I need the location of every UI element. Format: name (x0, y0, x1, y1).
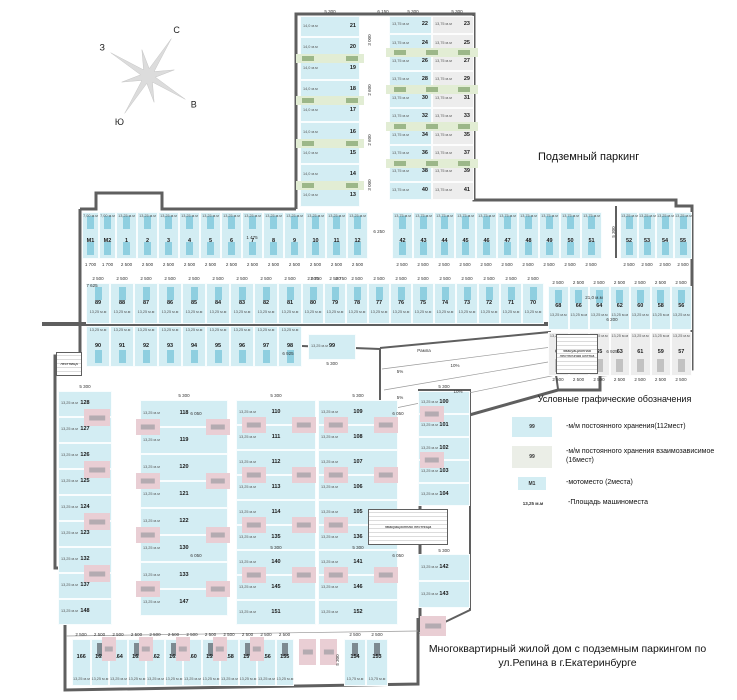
dimension-label: 2 600 (368, 84, 373, 95)
legend-item-storage: 99 -м/м постоянного хранения(112мест) (512, 417, 717, 437)
dimension-label: 2 500 (284, 277, 295, 282)
dimension-label: 2 500 (279, 633, 290, 638)
dimension-label: 2 500 (310, 263, 321, 268)
dimension-label: 5% (397, 396, 404, 401)
dimension-label: Рампа (417, 349, 430, 354)
dimension-label: 6 200 (606, 318, 617, 323)
legend-label: -м/м постоянного хранения взаимозависимо… (566, 448, 717, 466)
legend-item-moto: М1 -мотоместо (2места) (512, 477, 717, 490)
dimension-label: 5 300 (451, 10, 462, 15)
dimension-label: 3 000 (368, 34, 373, 45)
dimension-label: 2 500 (439, 277, 450, 282)
dimension-label: 2 500 (236, 277, 247, 282)
dimension-label: 2 500 (459, 263, 470, 268)
dimension-label: 2 500 (593, 281, 604, 286)
legend-label: -Площадь машиноместа (568, 499, 648, 508)
dimension-label: 2 500 (675, 378, 686, 383)
dimension-label: 2 500 (121, 263, 132, 268)
legend-swatch-storage: 99 (512, 417, 552, 437)
dimension-label: 2 500 (655, 281, 666, 286)
dimension-label: 6 050 (190, 412, 201, 417)
stair-evacuation-lower: эвакуационная лестница (368, 509, 448, 545)
stair-left: лестница (56, 352, 82, 376)
dimension-label: 5 300 (438, 385, 449, 390)
dimension-label: 2 500 (677, 263, 688, 268)
dimension-label: 2 500 (186, 633, 197, 638)
dimension-label: 2 500 (505, 277, 516, 282)
dimension-label: 2 500 (188, 277, 199, 282)
dimension-label: 6 250 (373, 230, 384, 235)
dimension-label: 2 500 (593, 378, 604, 383)
dimension-label: 2 500 (349, 633, 360, 638)
dimension-label: 2 500 (634, 378, 645, 383)
legend-label: -м/м постоянного хранения(112мест) (566, 423, 686, 432)
dimension-label: 2 500 (247, 263, 258, 268)
legend-label: -мотоместо (2места) (566, 479, 633, 488)
legend-item-dependent: 99 -м/м постоянного хранения взаимозавис… (512, 446, 717, 468)
dimension-label: 2 500 (75, 633, 86, 638)
dimension-label: 5% (397, 370, 404, 375)
dimension-label: 5 300 (178, 394, 189, 399)
stair-label: эвакуационная лестница (385, 525, 431, 530)
dimension-label: 5 300 (407, 10, 418, 15)
dimension-label: 2 500 (417, 263, 428, 268)
dimension-label: 2 500 (131, 633, 142, 638)
dimension-label: 2 500 (527, 277, 538, 282)
dimension-label: 5 300 (352, 546, 363, 551)
legend-swatch-moto: М1 (518, 477, 546, 490)
dimension-label: 2 500 (641, 263, 652, 268)
dimension-label: 2 500 (184, 263, 195, 268)
dimension-label: 2 500 (522, 263, 533, 268)
legend-item-area: 13,25 м.м -Площадь машиноместа (512, 499, 717, 508)
legend-swatch-dependent: 99 (512, 446, 552, 468)
dimension-label: 2 500 (289, 263, 300, 268)
dimension-label: 2 500 (614, 378, 625, 383)
dimension-label: 1 700 (85, 263, 96, 268)
dimension-label: 2 500 (552, 281, 563, 286)
dimension-label: 10% (450, 364, 459, 369)
dimension-label: 2 750 (310, 277, 321, 282)
dimension-label: 5 300 (270, 546, 281, 551)
dimension-label: 2 500 (543, 263, 554, 268)
dimension-label: 1 475 (246, 236, 257, 241)
dimension-label: 21,0 м.м (585, 296, 602, 301)
dimension-label: 2 500 (438, 263, 449, 268)
dimension-label: 2 500 (242, 633, 253, 638)
stair-label: лестница (60, 362, 77, 367)
dimension-label: 2 500 (92, 277, 103, 282)
legend-swatch-area: 13,25 м.м (512, 501, 554, 506)
dimension-label: 2 500 (260, 277, 271, 282)
dimension-label: 2 500 (164, 277, 175, 282)
dimension-label: 6 050 (392, 412, 403, 417)
dimension-label: 3 000 (368, 179, 373, 190)
dimension-label: 5 300 (438, 549, 449, 554)
legend: Условные графические обозначения 99 -м/м… (512, 394, 717, 517)
dimension-label: 2 500 (205, 263, 216, 268)
dimension-labels-layer: 1 7001 7002 5002 5002 5002 5002 5002 500… (0, 0, 737, 700)
dimension-label: 2 500 (396, 263, 407, 268)
dimension-label: 2 500 (223, 633, 234, 638)
dimension-label: 5 300 (326, 362, 337, 367)
dimension-label: 6 050 (392, 554, 403, 559)
dimension-label: 2 500 (655, 378, 666, 383)
dimension-label: 2 500 (168, 633, 179, 638)
dimension-label: 5 300 (270, 394, 281, 399)
dimension-label: 2 500 (112, 633, 123, 638)
dimension-label: 5 300 (79, 385, 90, 390)
dimension-label: 6 925 (606, 350, 617, 355)
project-title: Многоквартирный жилой дом с подземным па… (420, 643, 715, 670)
dimension-label: 2 500 (614, 281, 625, 286)
dimension-label: 6 925 (282, 352, 293, 357)
dimension-label: 2 500 (634, 281, 645, 286)
dimension-label: 2 500 (331, 263, 342, 268)
dimension-label: 2 500 (501, 263, 512, 268)
dimension-label: 2 500 (94, 633, 105, 638)
dimension-label: 5 300 (612, 226, 617, 237)
dimension-label: 10% (453, 390, 462, 395)
dimension-label: 2 500 (552, 378, 563, 383)
dimension-label: 2 500 (483, 277, 494, 282)
dimension-label: 7 625 (86, 284, 97, 289)
dimension-label: 2 500 (623, 263, 634, 268)
dimension-label: 2 500 (480, 263, 491, 268)
dimension-label: 5 300 (324, 10, 335, 15)
dimension-label: 5 300 (336, 654, 341, 665)
dimension-label: 2 500 (205, 633, 216, 638)
dimension-label: 2 500 (573, 378, 584, 383)
stair-evacuation-ramp-side: эвакуационная лестничная клетка (556, 334, 598, 374)
dimension-label: 2 500 (352, 263, 363, 268)
dimension-label: 2 500 (163, 263, 174, 268)
dimension-label: 2 500 (371, 633, 382, 638)
dimension-label: 1 700 (102, 263, 113, 268)
dimension-label: 2 500 (268, 263, 279, 268)
dimension-label: 2 500 (212, 277, 223, 282)
dimension-label: 2 500 (373, 277, 384, 282)
plan-area-label: Подземный паркинг (538, 151, 639, 163)
dimension-label: 6 150 (377, 10, 388, 15)
dimension-label: 2 500 (226, 263, 237, 268)
dimension-label: 2 500 (675, 281, 686, 286)
dimension-label: 2 500 (395, 277, 406, 282)
dimension-label: 2 600 (368, 134, 373, 145)
dimension-label: 2 500 (260, 633, 271, 638)
dimension-label: 6 050 (190, 554, 201, 559)
dimension-label: 2 500 (140, 277, 151, 282)
dimension-label: 5 300 (352, 394, 363, 399)
dimension-label: 2 750 (335, 277, 346, 282)
dimension-label: 2 500 (149, 633, 160, 638)
dimension-label: 2 500 (659, 263, 670, 268)
dimension-label: 2 500 (116, 277, 127, 282)
dimension-label: 2 500 (564, 263, 575, 268)
dimension-label: 2 500 (585, 263, 596, 268)
dimension-label: 2 500 (351, 277, 362, 282)
dimension-label: 2 500 (573, 281, 584, 286)
dimension-label: 2 500 (461, 277, 472, 282)
dimension-label: 2 500 (142, 263, 153, 268)
dimension-label: 2 500 (417, 277, 428, 282)
legend-title: Условные графические обозначения (512, 394, 717, 404)
floor-plan-canvas: СВЮЗ 14,0 м.м2114,0 м.м2014,0 м.м1914,0 … (0, 0, 737, 700)
stair-label: эвакуационная лестничная клетка (557, 349, 597, 358)
